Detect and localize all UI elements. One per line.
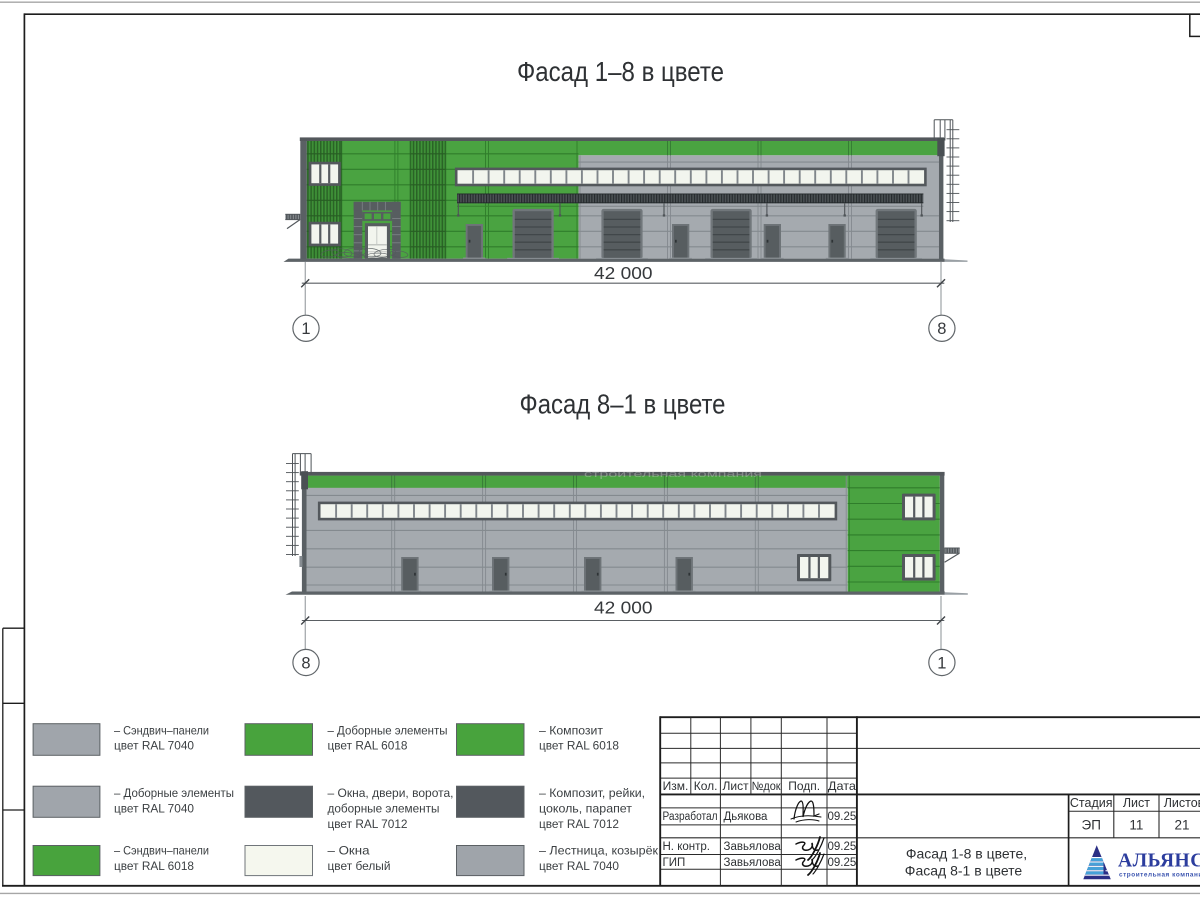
svg-text:цвет RAL 7012: цвет RAL 7012 (539, 817, 619, 831)
svg-text:09.25: 09.25 (828, 811, 857, 823)
svg-text:– Композит, рейки,: – Композит, рейки, (539, 786, 645, 800)
svg-text:цвет RAL 7040: цвет RAL 7040 (114, 801, 194, 815)
svg-text:09.25: 09.25 (828, 841, 857, 853)
svg-text:строительная компания: строительная компания (584, 469, 762, 480)
svg-text:Фасад 1-8 в цвете,: Фасад 1-8 в цвете, (906, 845, 1027, 861)
svg-text:Дата: Дата (828, 779, 856, 793)
svg-text:Лист: Лист (723, 779, 750, 793)
svg-text:1: 1 (301, 320, 310, 338)
svg-text:Лист: Лист (1123, 796, 1150, 810)
svg-text:– Сэндвич–панели: – Сэндвич–панели (114, 844, 209, 858)
svg-text:строительная компания: строительная компания (1119, 871, 1200, 878)
svg-text:8: 8 (937, 320, 946, 338)
svg-text:ЭП: ЭП (1081, 817, 1100, 832)
svg-text:Фасад 1–8 в цвете: Фасад 1–8 в цвете (517, 56, 724, 87)
svg-text:8: 8 (301, 654, 310, 672)
svg-text:Разработал: Разработал (663, 811, 718, 823)
svg-text:Дьякова: Дьякова (724, 811, 769, 823)
svg-text:1: 1 (937, 654, 946, 672)
svg-text:№док: №док (752, 779, 782, 793)
svg-text:42 000: 42 000 (594, 598, 653, 618)
svg-text:Завьялова: Завьялова (724, 841, 782, 853)
svg-text:21: 21 (1174, 817, 1189, 832)
svg-text:цвет RAL 7040: цвет RAL 7040 (114, 739, 194, 753)
svg-text:цвет белый: цвет белый (328, 859, 391, 873)
svg-text:ГИП: ГИП (663, 857, 686, 869)
svg-text:цоколь, парапет: цоколь, парапет (539, 801, 632, 815)
svg-text:цвет RAL 7040: цвет RAL 7040 (539, 859, 619, 873)
svg-text:Завьялова: Завьялова (724, 857, 782, 869)
svg-text:цвет RAL 6018: цвет RAL 6018 (539, 739, 619, 753)
svg-text:– Сэндвич–панели: – Сэндвич–панели (114, 723, 209, 737)
svg-text:– Доборные элементы: – Доборные элементы (328, 723, 448, 737)
svg-text:– Доборные элементы: – Доборные элементы (114, 786, 234, 800)
svg-text:доборные элементы: доборные элементы (328, 801, 440, 815)
svg-text:– Лестница, козырёк: – Лестница, козырёк (539, 844, 659, 858)
svg-text:Фасад 8-1 в цвете: Фасад 8-1 в цвете (905, 863, 1023, 879)
svg-text:11: 11 (1129, 817, 1143, 832)
svg-text:цвет RAL 6018: цвет RAL 6018 (328, 739, 408, 753)
svg-text:– Окна: – Окна (328, 844, 370, 858)
svg-text:цвет RAL 7012: цвет RAL 7012 (328, 817, 408, 831)
svg-text:Кол.: Кол. (694, 779, 718, 793)
svg-text:АЛЬЯНС: АЛЬЯНС (1118, 851, 1200, 872)
svg-text:Подп.: Подп. (788, 779, 820, 793)
svg-text:09.25: 09.25 (828, 857, 857, 869)
svg-text:Стадия: Стадия (1070, 796, 1113, 810)
svg-text:цвет RAL 6018: цвет RAL 6018 (114, 859, 194, 873)
svg-text:– Окна, двери, ворота,: – Окна, двери, ворота, (328, 786, 454, 800)
svg-text:42 000: 42 000 (594, 263, 653, 283)
svg-text:Н. контр.: Н. контр. (663, 841, 710, 853)
svg-text:– Композит: – Композит (539, 723, 603, 737)
svg-text:Листов: Листов (1164, 796, 1200, 810)
svg-text:Фасад 8–1 в цвете: Фасад 8–1 в цвете (520, 388, 726, 419)
svg-text:Изм.: Изм. (663, 779, 689, 793)
